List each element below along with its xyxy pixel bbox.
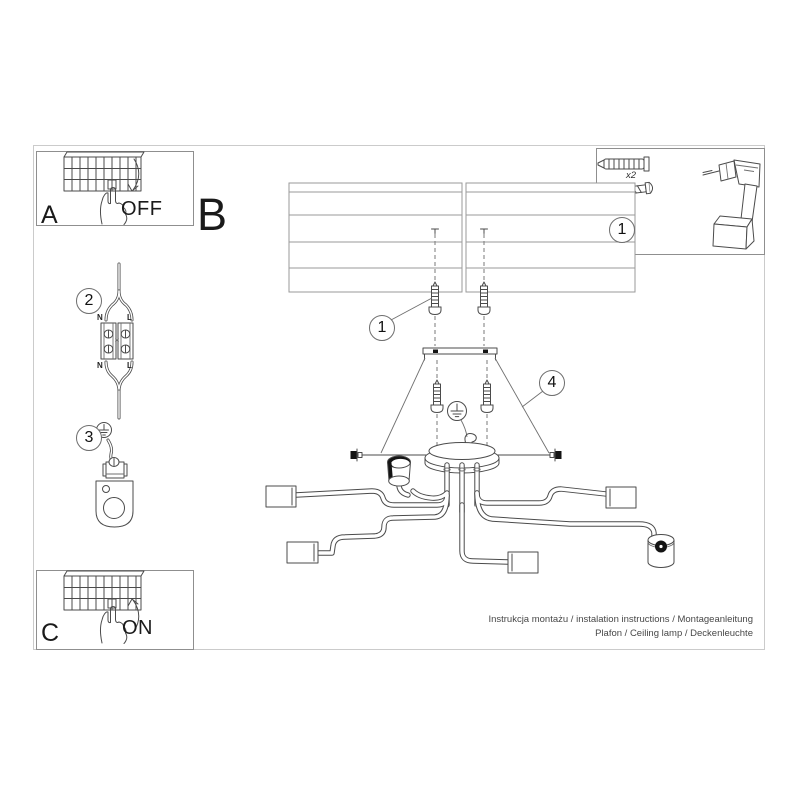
socket-head xyxy=(606,487,636,508)
callout-1-tools: 1 xyxy=(609,217,635,243)
socket-cup-icon xyxy=(388,456,411,486)
wall-plug-icon xyxy=(598,157,649,171)
earth-ground-main-icon xyxy=(448,402,468,438)
wire-label-n-top: N xyxy=(97,314,103,322)
socket-head xyxy=(287,542,318,563)
instruction-sheet: A OFF B C ON 2 3 1 4 1 N L N L x2 Instru… xyxy=(0,0,800,800)
side-screw-left xyxy=(351,449,363,461)
anchor-quantity-label: x2 xyxy=(626,171,636,181)
step-c-letter: C xyxy=(41,621,59,646)
callout-2: 2 xyxy=(76,288,102,314)
callout-4-leader xyxy=(522,391,543,407)
wire-label-l-bottom: L xyxy=(127,362,132,370)
footer-line-1: Instrukcja montażu / instalation instruc… xyxy=(430,613,753,627)
step-a-state-off: OFF xyxy=(121,199,163,219)
footer-line-2: Plafon / Ceiling lamp / Deckenleuchte xyxy=(430,627,753,641)
drill-icon xyxy=(703,160,760,249)
lamp-arms-icon xyxy=(266,433,674,573)
mounting-bracket-icon xyxy=(423,348,497,360)
terminal-block-icon xyxy=(101,264,133,418)
footer-text: Instrukcja montażu / instalation instruc… xyxy=(430,613,753,641)
callout-4: 4 xyxy=(539,370,565,396)
socket-head xyxy=(266,486,296,507)
socket-head xyxy=(508,552,538,573)
callout-1-main: 1 xyxy=(369,315,395,341)
side-screw-right xyxy=(550,449,562,461)
step-b-letter: B xyxy=(197,192,227,237)
ceiling-panels-icon xyxy=(289,183,635,292)
bulb-socket-icon xyxy=(648,535,674,568)
callout-3: 3 xyxy=(76,425,102,451)
diagram-artwork xyxy=(0,0,800,800)
wire-label-l-top: L xyxy=(127,314,132,322)
callout-1-leader xyxy=(391,298,432,320)
wire-label-n-bottom: N xyxy=(97,362,103,370)
step-a-letter: A xyxy=(41,203,58,228)
step-c-state-on: ON xyxy=(122,618,153,638)
